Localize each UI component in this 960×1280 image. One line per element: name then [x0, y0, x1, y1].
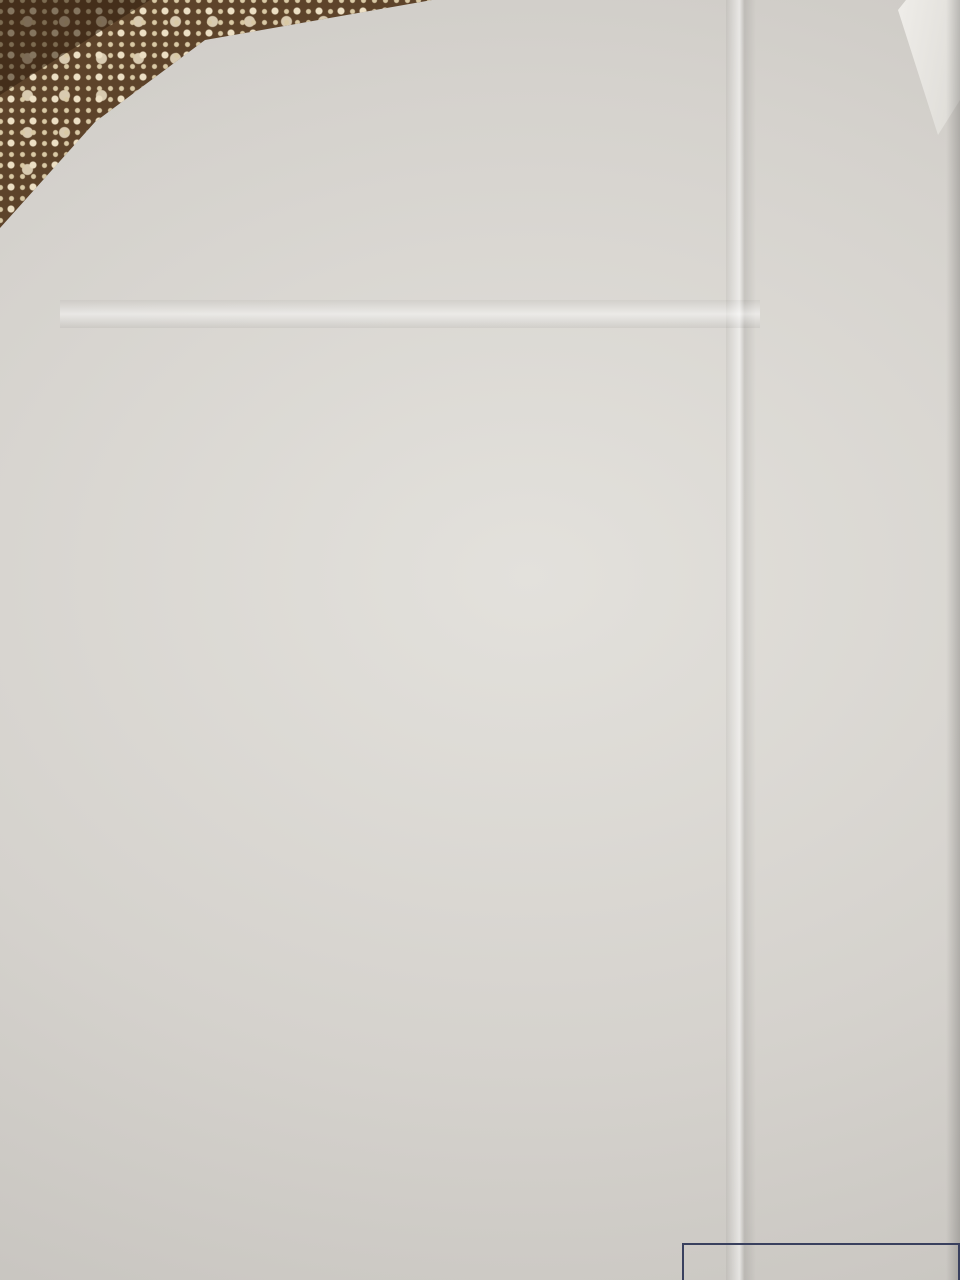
floor-plan-photo — [0, 0, 960, 1280]
floor-plan-drawing — [0, 0, 960, 1280]
registry-stamp — [682, 1243, 960, 1280]
